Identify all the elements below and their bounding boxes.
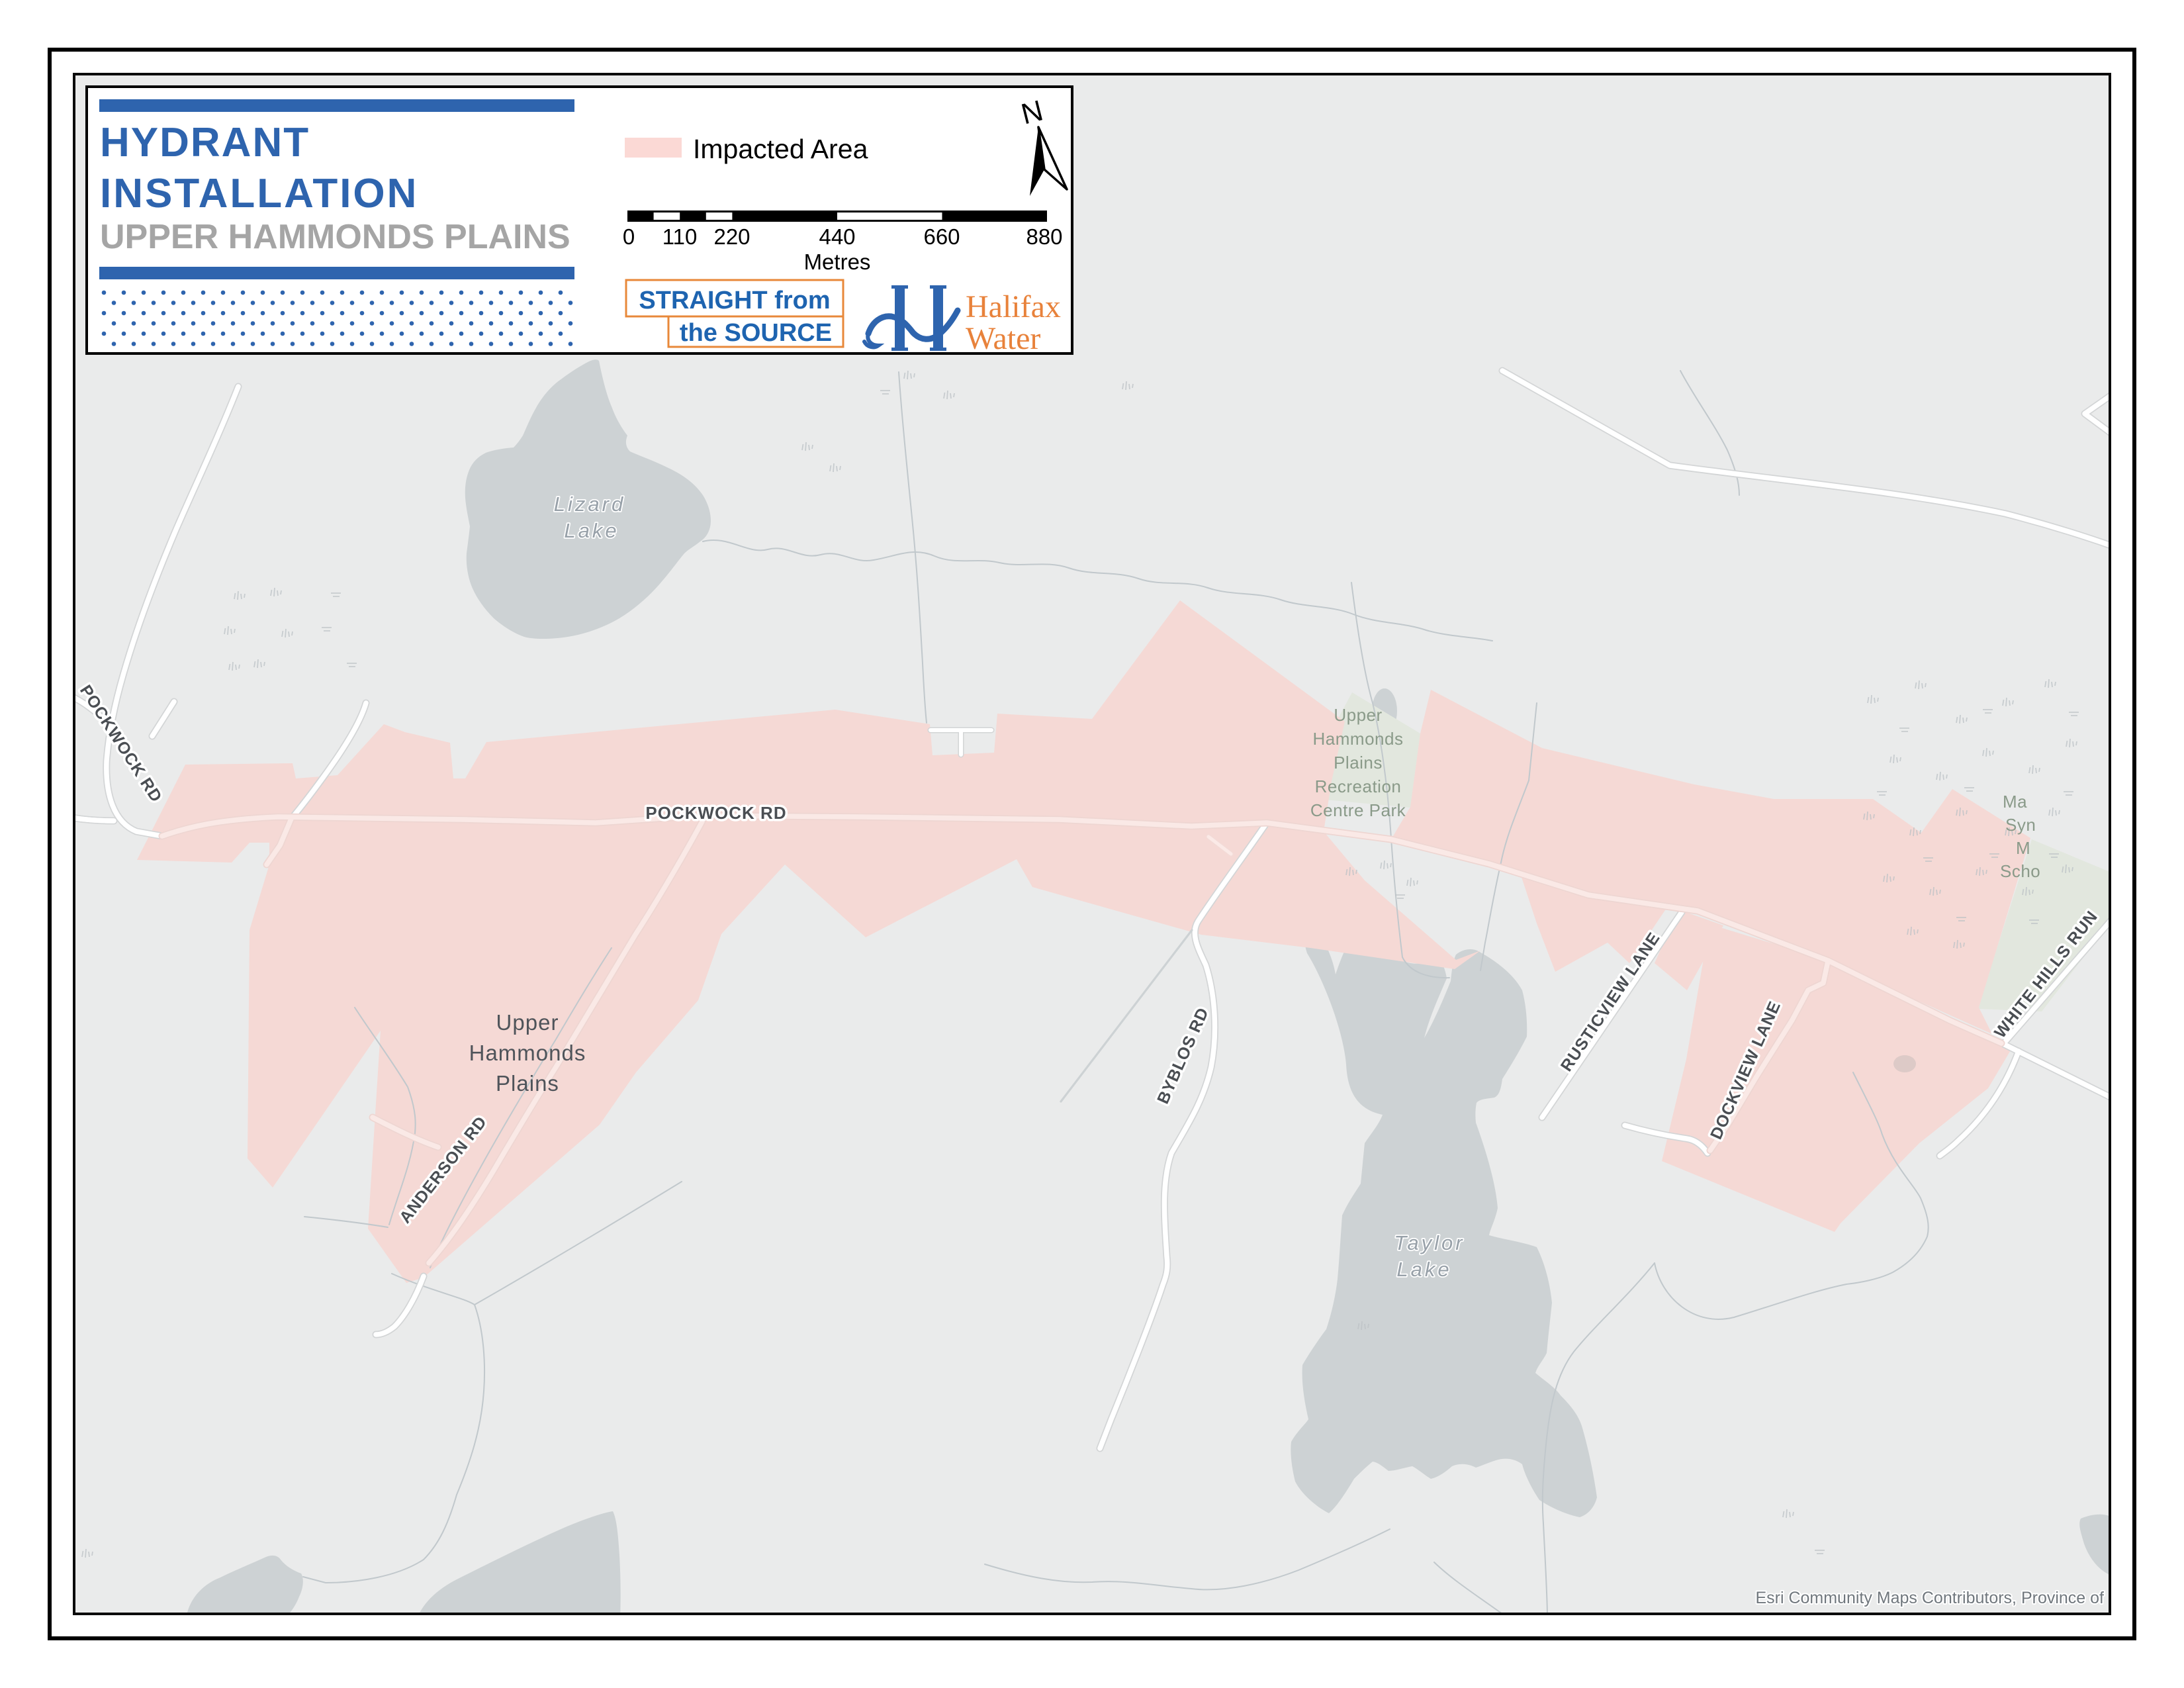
- svg-text:Upper: Upper: [496, 1010, 559, 1035]
- svg-text:Lizard: Lizard: [554, 492, 625, 516]
- svg-text:POCKWOCK RD: POCKWOCK RD: [645, 803, 786, 823]
- svg-text:Impacted Area: Impacted Area: [693, 134, 868, 164]
- svg-text:220: 220: [713, 224, 750, 249]
- svg-text:Scho: Scho: [2000, 861, 2040, 881]
- svg-text:Esri Community Maps Contributo: Esri Community Maps Contributors, Provin…: [1755, 1589, 2104, 1607]
- svg-text:Ma: Ma: [2003, 792, 2027, 812]
- svg-text:Lake: Lake: [564, 519, 619, 542]
- svg-text:UPPER HAMMONDS PLAINS: UPPER HAMMONDS PLAINS: [100, 218, 570, 256]
- svg-text:Hammonds: Hammonds: [469, 1041, 586, 1065]
- svg-text:Halifax: Halifax: [966, 289, 1061, 324]
- svg-text:Plains: Plains: [496, 1071, 559, 1096]
- svg-text:INSTALLATION: INSTALLATION: [100, 171, 418, 216]
- svg-text:110: 110: [662, 224, 698, 249]
- svg-text:Hammonds: Hammonds: [1313, 729, 1404, 749]
- svg-text:Upper: Upper: [1334, 705, 1382, 725]
- svg-text:0: 0: [623, 224, 635, 249]
- svg-text:M: M: [2016, 838, 2030, 858]
- svg-text:Plains: Plains: [1334, 753, 1383, 773]
- svg-text:880: 880: [1026, 224, 1062, 249]
- svg-text:Centre Park: Centre Park: [1310, 800, 1406, 820]
- svg-text:Metres: Metres: [804, 250, 871, 274]
- svg-text:the SOURCE: the SOURCE: [680, 319, 832, 347]
- svg-text:660: 660: [923, 224, 960, 249]
- svg-text:HYDRANT: HYDRANT: [100, 120, 310, 165]
- svg-text:Water: Water: [966, 321, 1040, 352]
- svg-text:Lake: Lake: [1396, 1258, 1451, 1281]
- svg-text:Taylor: Taylor: [1394, 1231, 1465, 1254]
- svg-text:STRAIGHT from: STRAIGHT from: [639, 287, 830, 314]
- svg-text:Syn: Syn: [2005, 815, 2036, 835]
- svg-text:POCKWOCK RD: POCKWOCK RD: [76, 682, 165, 806]
- svg-text:Recreation: Recreation: [1315, 776, 1402, 796]
- svg-text:N: N: [1018, 94, 1046, 130]
- svg-text:440: 440: [819, 224, 855, 249]
